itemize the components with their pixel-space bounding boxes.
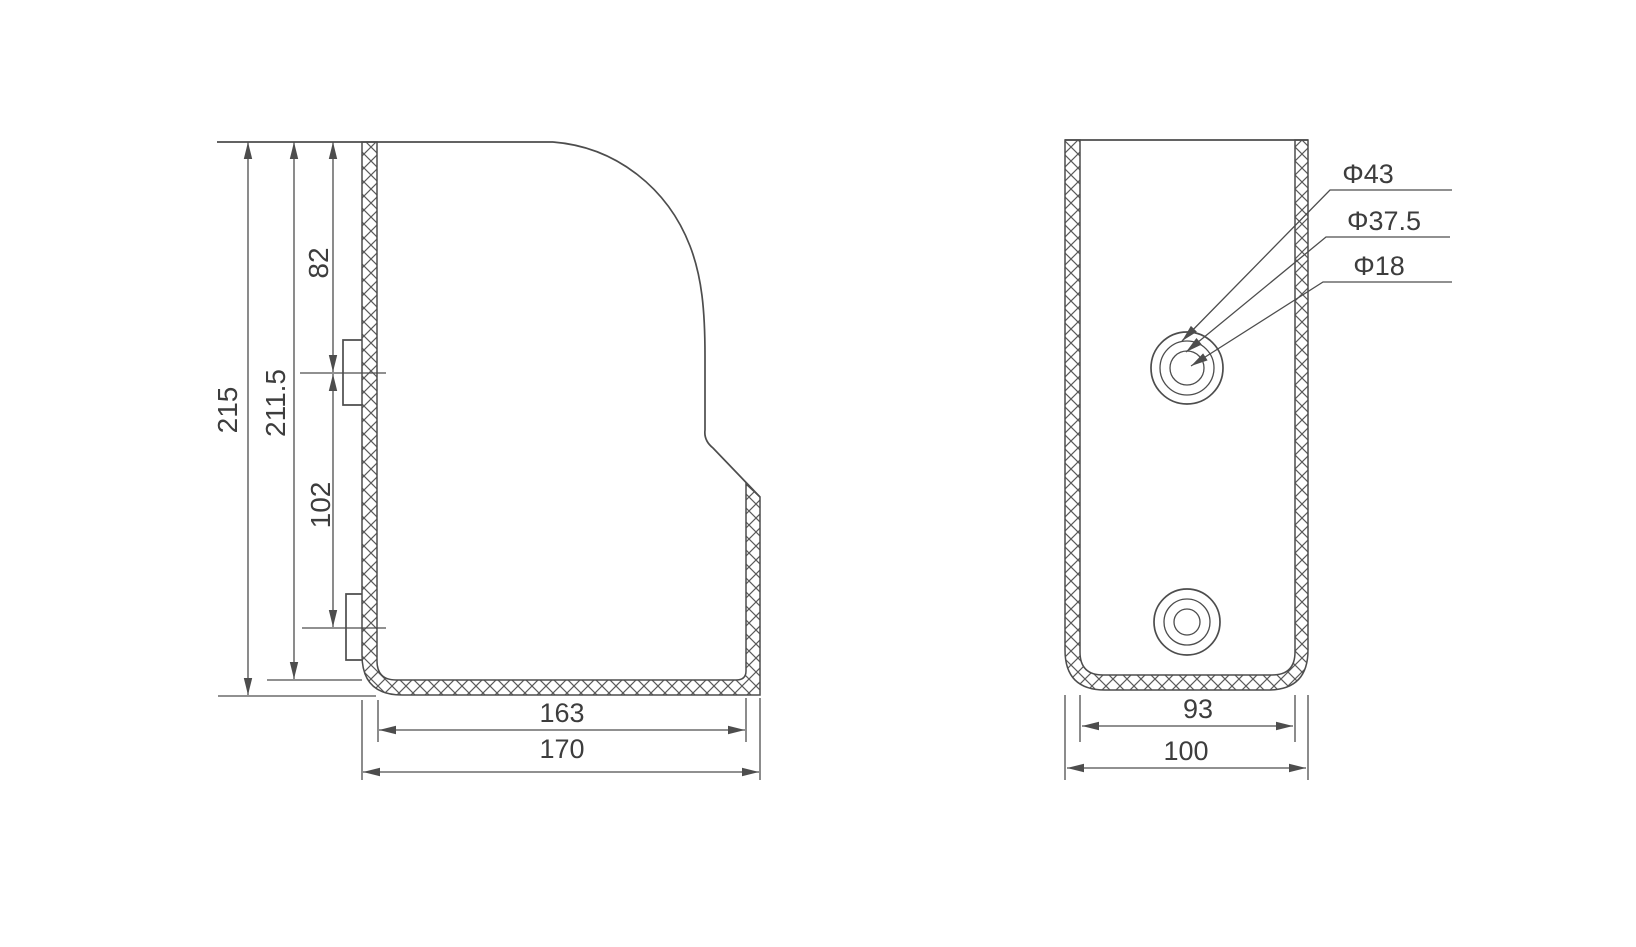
side-mount-tab-lower <box>346 594 362 660</box>
dim-102: 102 <box>305 374 336 627</box>
callout-dia-18-leader <box>1191 282 1452 366</box>
dim-215-label: 215 <box>212 387 243 434</box>
upper-hole-outer-circle <box>1151 332 1223 404</box>
callout-dia-43: Φ43 <box>1182 159 1452 341</box>
side-hatched-section <box>362 142 760 695</box>
dim-170-label: 170 <box>539 734 584 764</box>
drawing-sheet: 215 211.5 82 102 163 170 <box>0 0 1636 947</box>
callout-dia-37-5-label: Φ37.5 <box>1347 206 1421 236</box>
side-dome-outline <box>553 142 760 497</box>
callout-dia-18-label: Φ18 <box>1353 251 1405 281</box>
dim-82-label: 82 <box>303 247 334 278</box>
callout-dia-18: Φ18 <box>1191 251 1452 366</box>
engineering-drawing: 215 211.5 82 102 163 170 <box>0 0 1636 947</box>
dim-93: 93 <box>1082 694 1293 726</box>
dim-170: 170 <box>363 734 759 772</box>
dim-211-5: 211.5 <box>260 142 294 679</box>
callout-dia-37-5: Φ37.5 <box>1186 206 1450 352</box>
lower-hole-middle-circle <box>1164 599 1210 645</box>
dim-102-label: 102 <box>305 482 336 529</box>
dim-100-label: 100 <box>1163 736 1208 766</box>
callout-dia-37-5-leader <box>1186 237 1450 352</box>
dim-163-label: 163 <box>539 698 584 728</box>
callout-dia-43-label: Φ43 <box>1342 159 1394 189</box>
lower-hole-circles <box>1154 589 1220 655</box>
dim-100: 100 <box>1067 736 1306 768</box>
dim-215: 215 <box>212 142 248 695</box>
dim-163: 163 <box>379 698 745 730</box>
dim-211-5-label: 211.5 <box>260 369 291 437</box>
front-section-view: Φ43 Φ37.5 Φ18 93 100 <box>1065 140 1452 780</box>
upper-hole-middle-circle <box>1160 341 1214 395</box>
upper-hole-inner-circle <box>1170 351 1204 385</box>
dim-82: 82 <box>303 142 334 372</box>
front-hatched-section <box>1065 140 1308 690</box>
lower-hole-inner-circle <box>1174 609 1200 635</box>
side-section-view: 215 211.5 82 102 163 170 <box>212 142 760 780</box>
upper-hole-circles <box>1151 332 1223 404</box>
dim-93-label: 93 <box>1183 694 1213 724</box>
